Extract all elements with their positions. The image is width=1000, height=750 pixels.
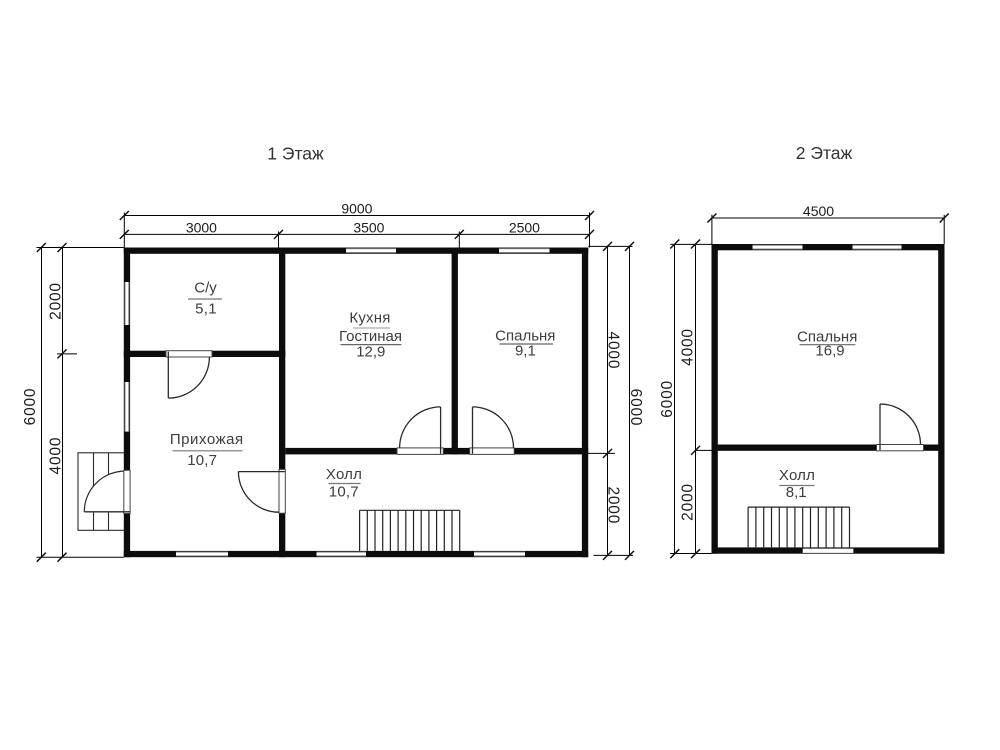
svg-text:4000: 4000 [48,437,65,475]
svg-text:4000: 4000 [605,332,622,370]
svg-text:2000: 2000 [605,486,622,524]
svg-text:6000: 6000 [659,380,676,418]
svg-text:9,1: 9,1 [515,342,536,359]
svg-text:4500: 4500 [803,203,834,219]
svg-text:6000: 6000 [627,389,644,427]
svg-text:1 Этаж: 1 Этаж [267,144,324,164]
svg-text:2500: 2500 [509,219,540,235]
svg-text:3000: 3000 [186,219,217,235]
svg-text:5,1: 5,1 [195,300,217,317]
svg-text:Холл: Холл [326,466,362,483]
svg-text:10,7: 10,7 [187,452,217,469]
svg-text:6000: 6000 [22,388,39,426]
svg-text:Холл: Холл [779,467,815,484]
svg-text:С/у: С/у [194,279,217,296]
svg-text:8,1: 8,1 [786,484,807,501]
svg-text:Гостиная: Гостиная [339,328,402,345]
svg-text:Прихожая: Прихожая [170,431,244,448]
svg-text:16,9: 16,9 [815,342,844,359]
svg-text:3500: 3500 [353,219,384,235]
svg-text:12,9: 12,9 [356,344,385,361]
svg-text:9000: 9000 [341,201,372,217]
svg-text:2000: 2000 [48,282,65,320]
svg-text:Кухня: Кухня [349,310,390,327]
svg-text:4000: 4000 [679,328,696,366]
svg-text:2 Этаж: 2 Этаж [796,143,853,163]
svg-text:10,7: 10,7 [329,483,359,500]
svg-text:2000: 2000 [679,483,696,521]
